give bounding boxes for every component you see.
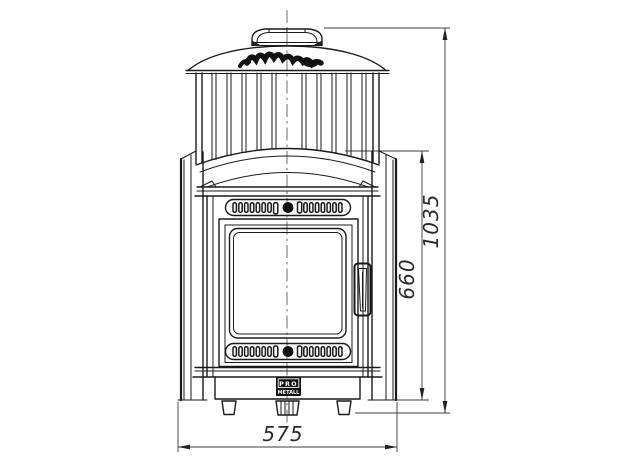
dim-label-firebox-height: 660 xyxy=(395,258,419,299)
upper-vent-grille xyxy=(226,200,351,216)
dim-label-overall-height: 1035 xyxy=(419,194,443,249)
front-arch-band xyxy=(200,173,375,188)
fire-door xyxy=(219,219,371,367)
stove-technical-drawing: 1035 660 575 xyxy=(0,0,624,460)
foot-right xyxy=(337,401,351,415)
brand-badge-top: PRO xyxy=(279,380,298,388)
foot-center xyxy=(276,401,299,415)
vent-knob xyxy=(283,202,294,213)
dim-overall-width: 575 xyxy=(178,402,397,452)
upper-shelf xyxy=(195,187,380,196)
arrowhead-up-icon xyxy=(443,28,448,40)
arrowhead-left-icon xyxy=(178,445,190,450)
base-plinth: PRO METALL xyxy=(215,377,360,400)
dome-cap xyxy=(186,46,389,74)
brand-script-logo xyxy=(240,54,321,66)
dim-label-overall-width: 575 xyxy=(262,422,303,446)
convection-slats xyxy=(196,73,379,172)
lower-shelf xyxy=(193,368,382,378)
arrowhead-right-icon xyxy=(385,445,397,450)
vent-knob xyxy=(283,346,294,357)
lower-vent-grille xyxy=(226,344,351,360)
brand-badge: PRO METALL xyxy=(276,377,301,397)
feet xyxy=(222,401,351,415)
foot-left xyxy=(222,401,236,415)
body-right-panel xyxy=(368,151,397,400)
arrowhead-down-icon xyxy=(420,388,425,400)
arrowhead-down-icon xyxy=(443,401,448,413)
brand-badge-bottom: METALL xyxy=(278,390,300,396)
body-left-panel xyxy=(178,151,207,400)
door-glass xyxy=(230,229,347,339)
arrowhead-up-icon xyxy=(420,151,425,163)
dim-overall-height: 1035 xyxy=(324,28,450,413)
